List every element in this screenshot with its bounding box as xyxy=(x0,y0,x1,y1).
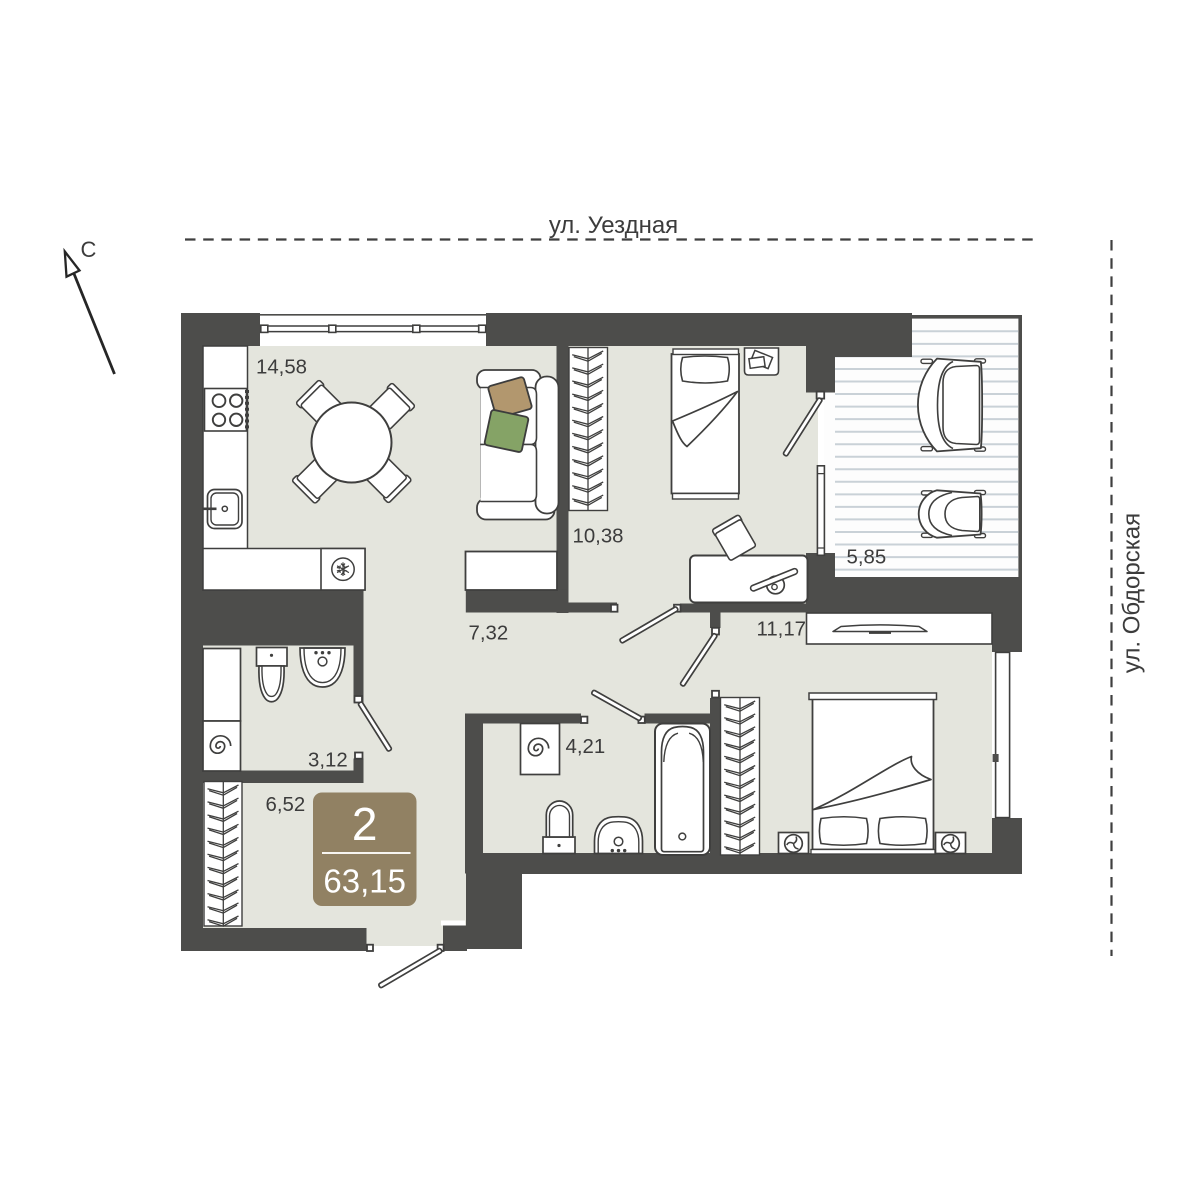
svg-text:63,15: 63,15 xyxy=(323,863,406,900)
svg-text:С: С xyxy=(81,237,97,262)
svg-text:5,85: 5,85 xyxy=(847,547,887,569)
svg-text:14,58: 14,58 xyxy=(256,357,307,379)
svg-text:11,17: 11,17 xyxy=(757,619,807,641)
svg-text:10,38: 10,38 xyxy=(573,526,624,548)
svg-text:7,32: 7,32 xyxy=(469,623,509,645)
svg-text:3,12: 3,12 xyxy=(308,750,348,772)
svg-text:2: 2 xyxy=(352,798,378,850)
svg-text:ул. Уездная: ул. Уездная xyxy=(549,212,678,239)
svg-text:ул. Обдорская: ул. Обдорская xyxy=(1119,513,1146,673)
svg-text:4,21: 4,21 xyxy=(566,736,606,758)
svg-text:6,52: 6,52 xyxy=(266,794,306,816)
